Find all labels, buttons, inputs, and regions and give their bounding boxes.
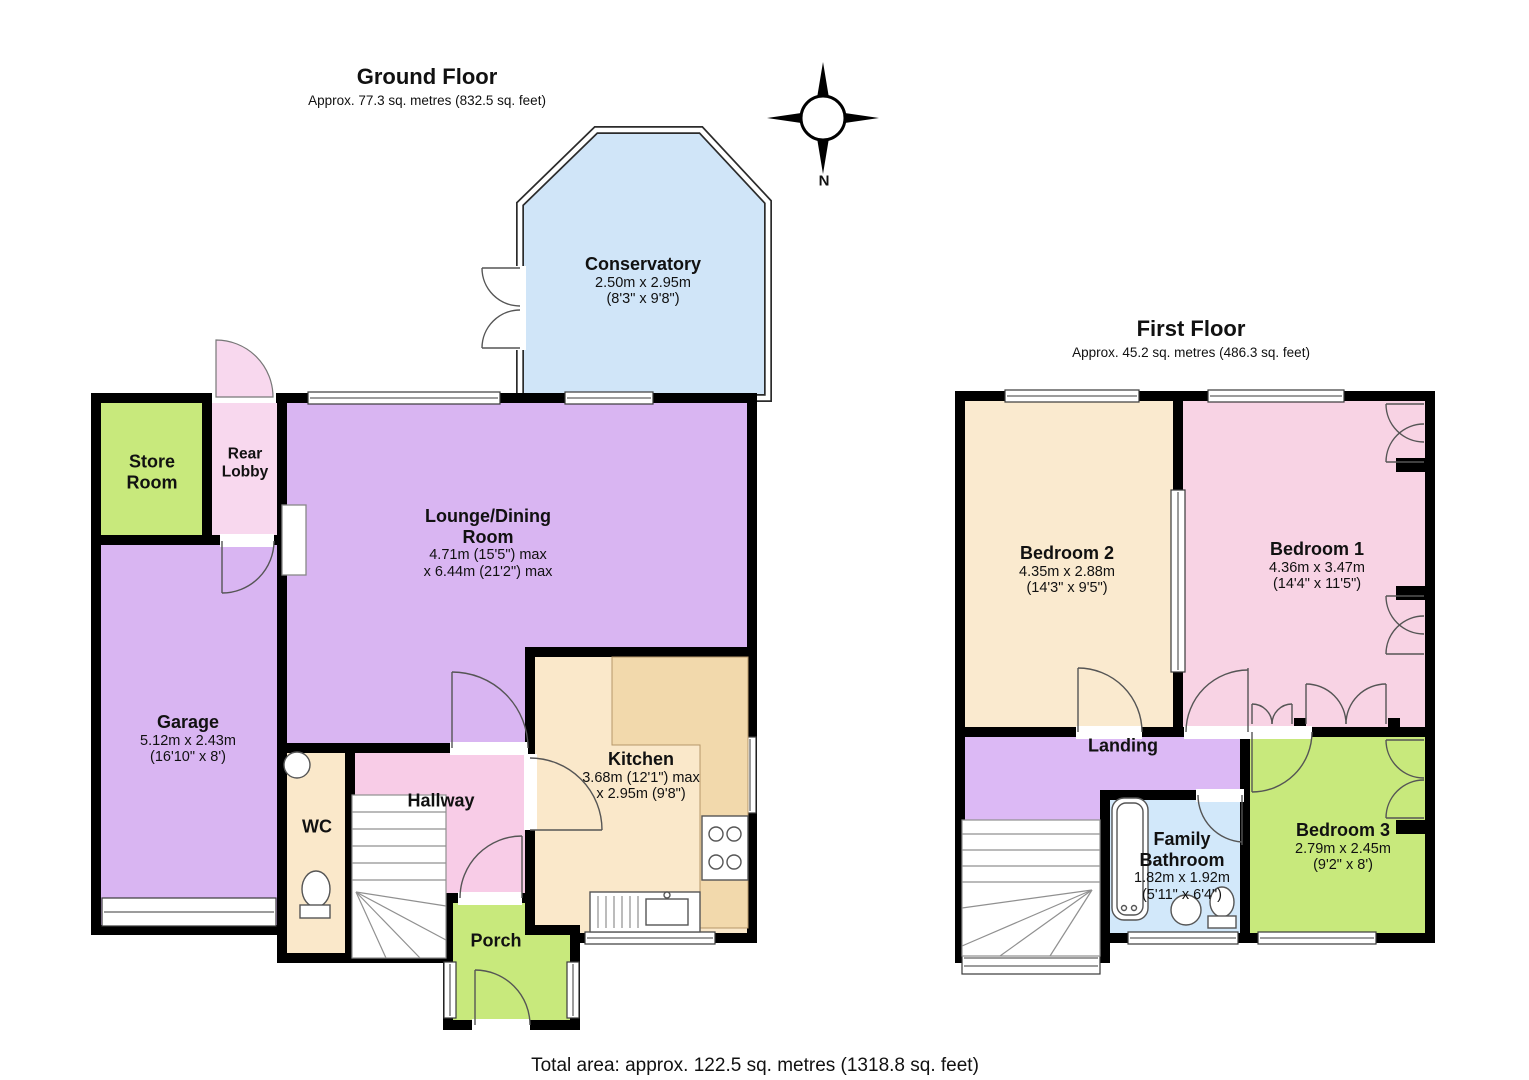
room-name: Landing xyxy=(1053,736,1193,757)
compass-rose xyxy=(767,62,879,174)
room-name: Store Room xyxy=(107,451,197,492)
room-dim-imperial: (14'4" x 11'5") xyxy=(1225,576,1410,593)
room-label-porch: Porch xyxy=(446,931,546,952)
room-name: Garage xyxy=(103,712,273,733)
room-name: Conservatory xyxy=(543,254,743,275)
room-name: Kitchen xyxy=(536,749,746,770)
room-label-garage: Garage 5.12m x 2.43m (16'10" x 8') xyxy=(103,712,273,766)
room-dim-imperial: (14'3" x 9'5") xyxy=(980,580,1155,597)
room-name: Bedroom 1 xyxy=(1225,539,1410,560)
room-label-lounge-dining: Lounge/Dining Room 4.71m (15'5") max x 6… xyxy=(411,506,566,580)
wc-sink xyxy=(284,752,310,778)
room-label-conservatory: Conservatory 2.50m x 2.95m (8'3" x 9'8") xyxy=(543,254,743,308)
room-name: Bedroom 2 xyxy=(980,543,1155,564)
room-label-hallway: Hallway xyxy=(381,791,501,812)
first-floor-title: First Floor Approx. 45.2 sq. metres (486… xyxy=(1072,316,1310,360)
room-label-wc: WC xyxy=(287,817,347,838)
kitchen-hob xyxy=(702,816,748,880)
room-dim-imperial: (9'2" x 8') xyxy=(1251,857,1436,874)
room-dim-metric: 2.79m x 2.45m xyxy=(1251,841,1436,858)
room-dim-imperial: (16'10" x 8') xyxy=(103,749,273,766)
floor-subtitle-text: Approx. 45.2 sq. metres (486.3 sq. feet) xyxy=(1072,345,1310,360)
room-name: Rear Lobby xyxy=(213,445,277,480)
room-dim-imperial: (8'3" x 9'8") xyxy=(543,291,743,308)
compass-north-label: N xyxy=(819,173,830,190)
compass-hub xyxy=(801,96,845,140)
room-label-landing: Landing xyxy=(1053,736,1193,757)
ground-stairs xyxy=(352,795,446,958)
room-name: WC xyxy=(287,817,347,838)
room-label-kitchen: Kitchen 3.68m (12'1") max x 2.95m (9'8") xyxy=(536,749,746,803)
total-area-text: Total area: approx. 122.5 sq. metres (13… xyxy=(531,1055,979,1077)
room-label-store-room: Store Room xyxy=(107,451,197,492)
room-dim-metric: 3.68m (12'1") max xyxy=(536,770,746,787)
room-label-bedroom2: Bedroom 2 4.35m x 2.88m (14'3" x 9'5") xyxy=(980,543,1155,597)
room-label-family-bathroom: Family Bathroom 1.82m x 1.92m (5'11" x 6… xyxy=(1120,829,1245,903)
rear-lobby-garden-door xyxy=(216,340,273,397)
room-dim-metric: 2.50m x 2.95m xyxy=(543,275,743,292)
wc-shape xyxy=(282,748,350,958)
ground-floor-title: Ground Floor Approx. 77.3 sq. metres (83… xyxy=(308,64,546,108)
room-name: Family Bathroom xyxy=(1120,829,1245,870)
floor-title-text: First Floor xyxy=(1072,316,1310,342)
wc-toilet xyxy=(302,871,330,907)
room-name: Bedroom 3 xyxy=(1251,820,1436,841)
room-name: Porch xyxy=(446,931,546,952)
room-dim-metric: 4.71m (15'5") max xyxy=(411,547,566,564)
room-dim-metric: 4.35m x 2.88m xyxy=(980,564,1155,581)
floor-subtitle-text: Approx. 77.3 sq. metres (832.5 sq. feet) xyxy=(308,93,546,108)
first-stairs xyxy=(962,820,1100,956)
room-name: Hallway xyxy=(381,791,501,812)
room-label-bedroom1: Bedroom 1 4.36m x 3.47m (14'4" x 11'5") xyxy=(1225,539,1410,593)
room-dim-metric: 1.82m x 1.92m xyxy=(1120,870,1245,887)
room-label-rear-lobby: Rear Lobby xyxy=(213,445,277,480)
floor-title-text: Ground Floor xyxy=(308,64,546,90)
room-dim-metric: 5.12m x 2.43m xyxy=(103,733,273,750)
chimney-breast xyxy=(282,505,306,575)
room-dim-imperial: (5'11" x 6'4") xyxy=(1120,887,1245,904)
room-dim-imperial: x 2.95m (9'8") xyxy=(536,786,746,803)
room-name: Lounge/Dining Room xyxy=(411,506,566,547)
room-dim-metric: 4.36m x 3.47m xyxy=(1225,560,1410,577)
room-label-bedroom3: Bedroom 3 2.79m x 2.45m (9'2" x 8') xyxy=(1251,820,1436,874)
kitchen-sink-basin xyxy=(646,899,688,925)
floorplan-page: Ground Floor Approx. 77.3 sq. metres (83… xyxy=(0,0,1529,1080)
room-dim-imperial: x 6.44m (21'2") max xyxy=(411,564,566,581)
